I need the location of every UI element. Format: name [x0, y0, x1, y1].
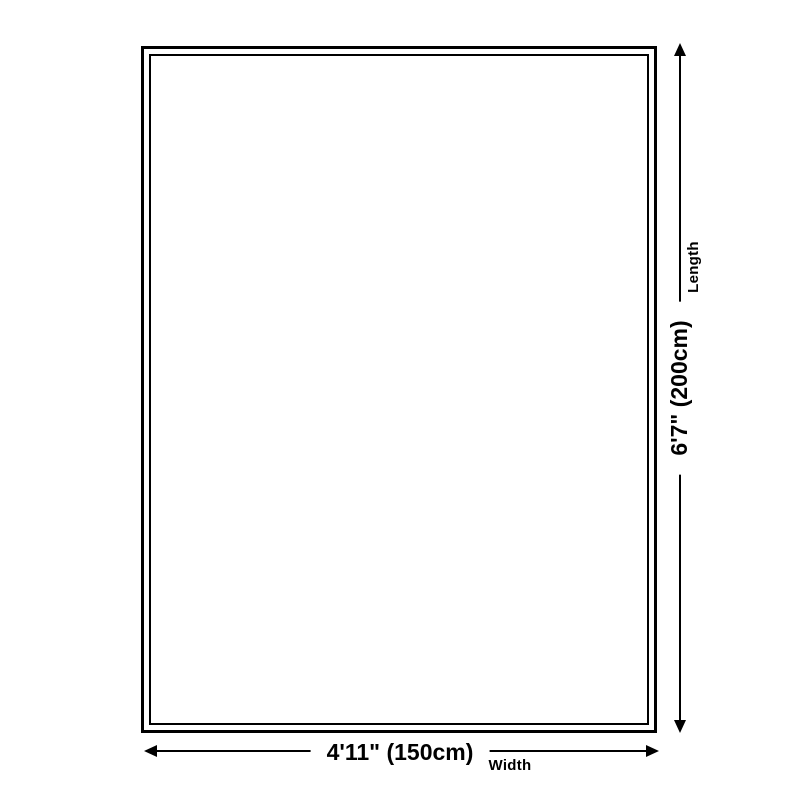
item-outline-rectangle — [141, 46, 657, 733]
item-outline-inner-border — [149, 54, 649, 725]
length-dimension-value: 6'7" (200cm) — [665, 301, 695, 474]
arrow-left-icon — [144, 745, 157, 757]
width-axis-label: Width — [488, 758, 531, 775]
arrow-right-icon — [646, 745, 659, 757]
width-dimension-value: 4'11" (150cm) — [311, 738, 490, 768]
size-diagram: 6'7" (200cm) Length 4'11" (150cm) Width — [0, 0, 800, 800]
arrow-down-icon — [674, 720, 686, 733]
length-axis-label: Length — [686, 241, 703, 293]
arrow-up-icon — [674, 43, 686, 56]
